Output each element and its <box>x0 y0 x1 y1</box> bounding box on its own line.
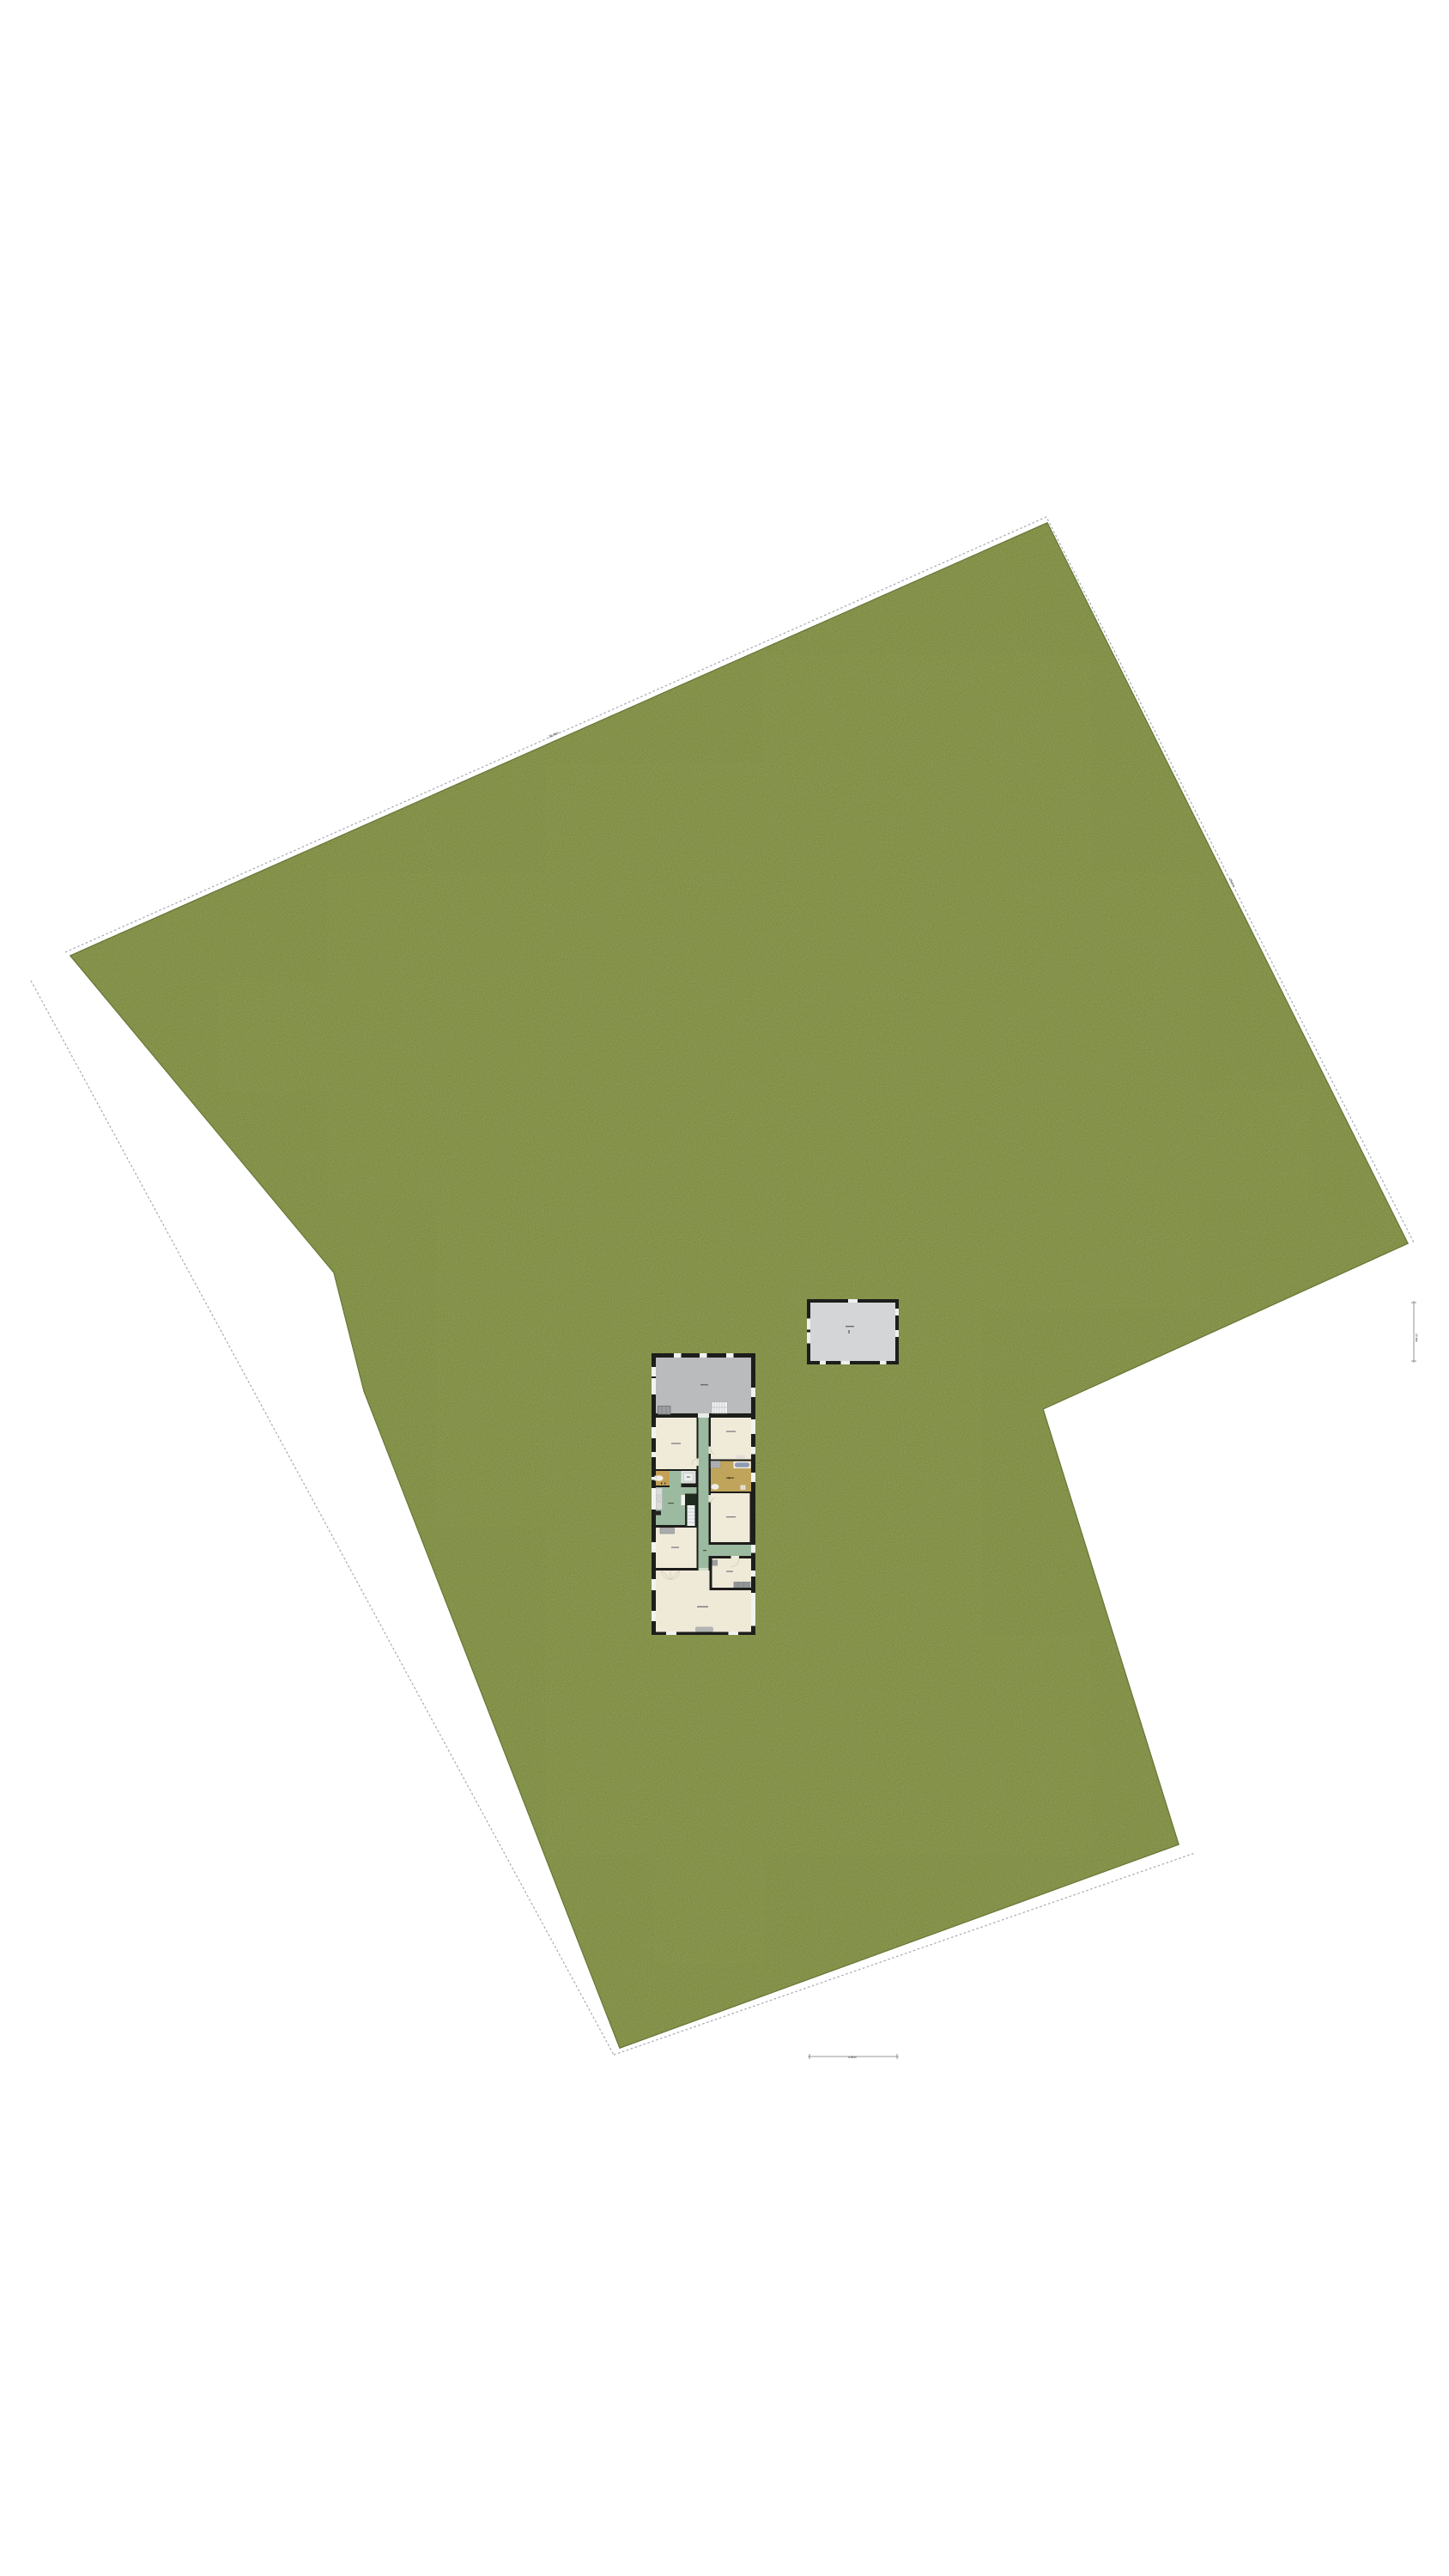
svg-text:4.61m: 4.61m <box>848 2056 857 2059</box>
svg-text:10.4m: 10.4m <box>1415 1334 1418 1342</box>
svg-text:36.96m: 36.96m <box>549 731 560 738</box>
